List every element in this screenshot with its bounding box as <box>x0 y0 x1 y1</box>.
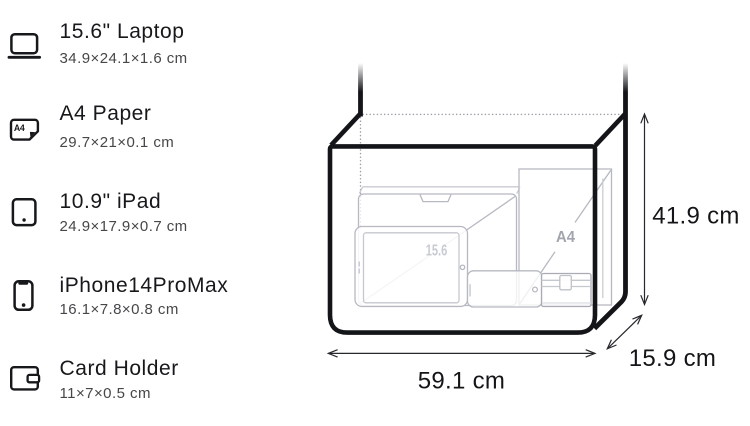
svg-text:A4: A4 <box>14 123 25 133</box>
svg-text:A4: A4 <box>556 229 575 246</box>
svg-text:15.6: 15.6 <box>426 242 448 259</box>
svg-text:41.9 cm: 41.9 cm <box>652 202 739 229</box>
svg-text:59.1 cm: 59.1 cm <box>418 367 505 394</box>
svg-text:15.9 cm: 15.9 cm <box>629 345 716 372</box>
